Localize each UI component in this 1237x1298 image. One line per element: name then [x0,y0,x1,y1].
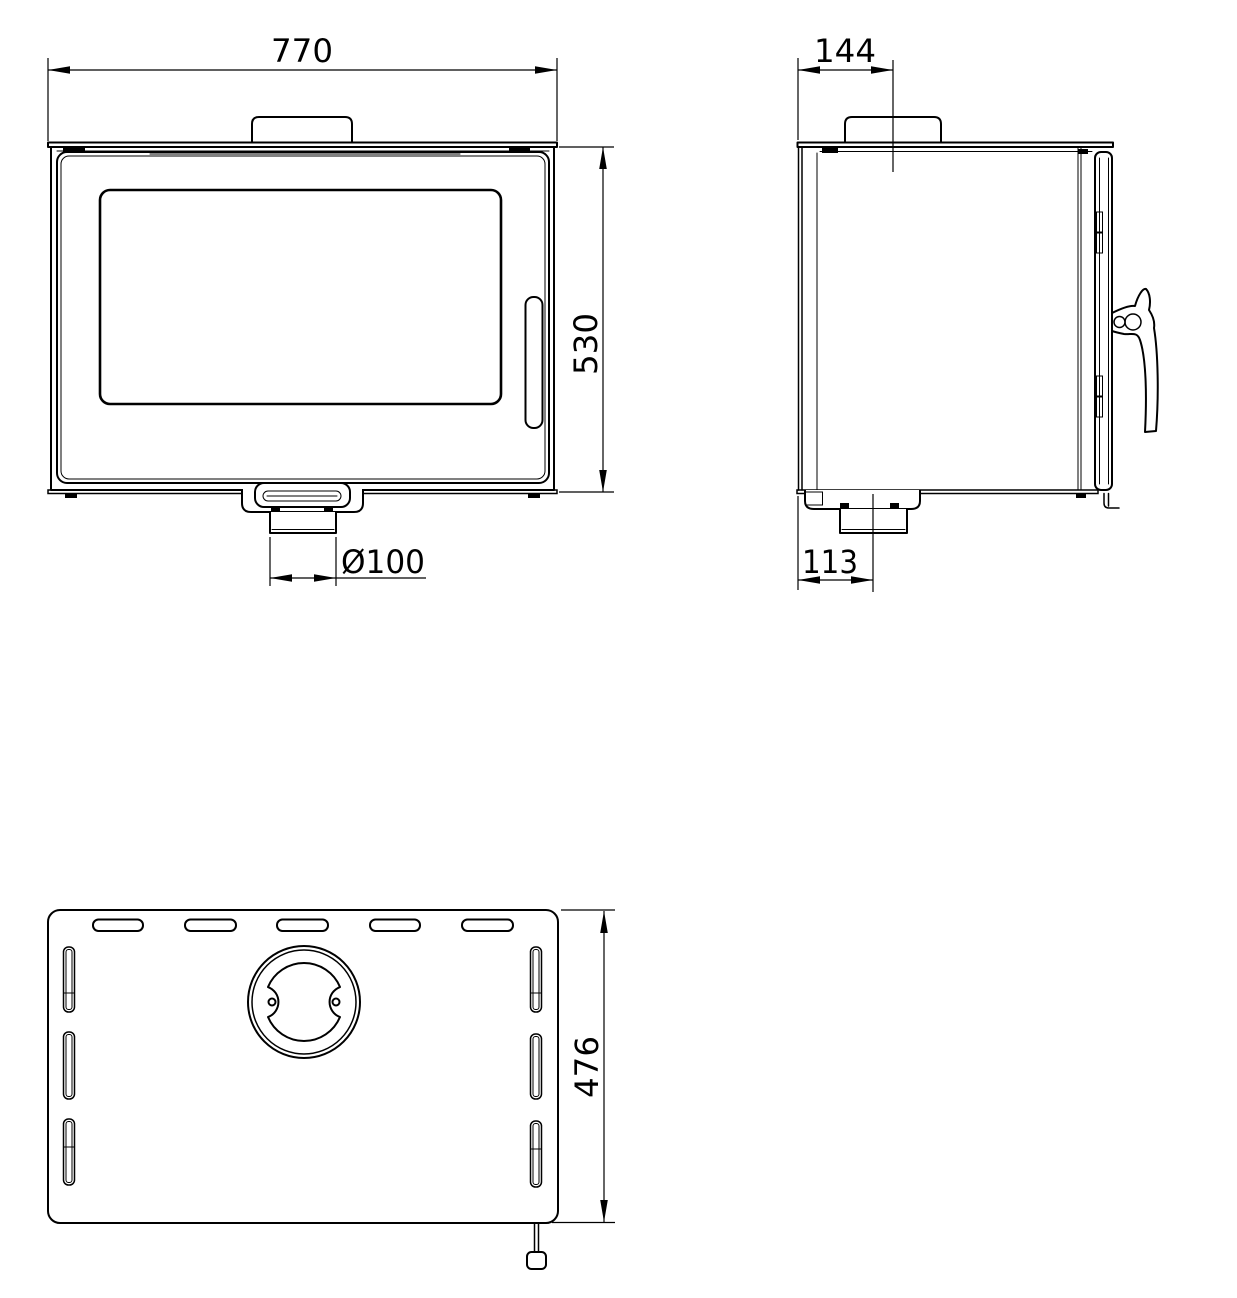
front-door-inner-line [61,156,545,479]
dimension-770: 770 [48,32,557,141]
side-front-edge [1078,147,1081,490]
cover-screw-right [333,999,340,1006]
dim-label-530: 530 [567,313,605,375]
dim-label-diameter-100: Ø100 [341,543,425,581]
vent-slot [531,1034,542,1099]
dim-label-476: 476 [568,1036,606,1098]
side-foot-right [1076,494,1086,499]
plan-right-vent-slots [531,947,542,1187]
side-bracket-tab-right [890,503,899,509]
plan-left-vent-slots [64,947,75,1185]
front-foot-right [528,494,540,498]
vent-slot [370,920,420,932]
dim-label-144: 144 [814,32,876,70]
ash-lever-handle [255,483,350,507]
front-view: 770 530 Ø100 [48,32,614,586]
dim-label-770: 770 [271,32,333,70]
front-body [51,147,554,490]
vent-slot [462,920,513,932]
side-door-handle [1112,289,1158,432]
vent-slot [64,1119,75,1185]
handle-pivot-outer [1125,314,1141,330]
side-bracket-tab-left [840,503,849,509]
side-view: 144 113 [797,32,1158,592]
handle-blade [1112,289,1158,432]
front-flue-collar [252,117,352,142]
knob [527,1252,546,1269]
technical-drawing-page: 770 530 Ø100 [0,0,1237,1298]
side-door-profile [1095,152,1112,490]
dimension-476: 476 [552,910,615,1223]
dimension-530: 530 [559,147,614,492]
plan-flue-opening [248,946,360,1058]
side-back-wall [799,147,818,490]
plan-base-plate [48,910,558,1223]
dimension-diameter-100: Ø100 [270,537,426,586]
side-top-plate [798,143,1114,155]
cover-screw-left [269,999,276,1006]
side-top-mark-right [1078,149,1088,154]
front-door [57,152,549,483]
door-glass-window [100,190,501,404]
plan-handle-knob [527,1223,546,1269]
vent-slot [64,1032,75,1099]
front-bottom-spigot [270,512,336,533]
vent-slot [531,1121,542,1187]
front-foot-left [65,494,77,498]
plan-top-vent-slots [93,920,513,932]
vent-slot [531,947,542,1012]
side-door-bottom-foot [1104,494,1119,509]
vent-slot [185,920,236,932]
side-top-mark-left [822,148,838,153]
vent-slot [277,920,328,932]
vent-slot [93,920,143,932]
handle-pivot-inner [1114,317,1125,328]
door-handle-slot [526,297,543,428]
dim-label-113: 113 [802,543,858,581]
flue-cover-plate [268,963,340,1041]
plan-view: 476 [48,910,615,1269]
vent-slot [64,947,75,1012]
stove-drawing-svg: 770 530 Ø100 [0,0,1237,1298]
